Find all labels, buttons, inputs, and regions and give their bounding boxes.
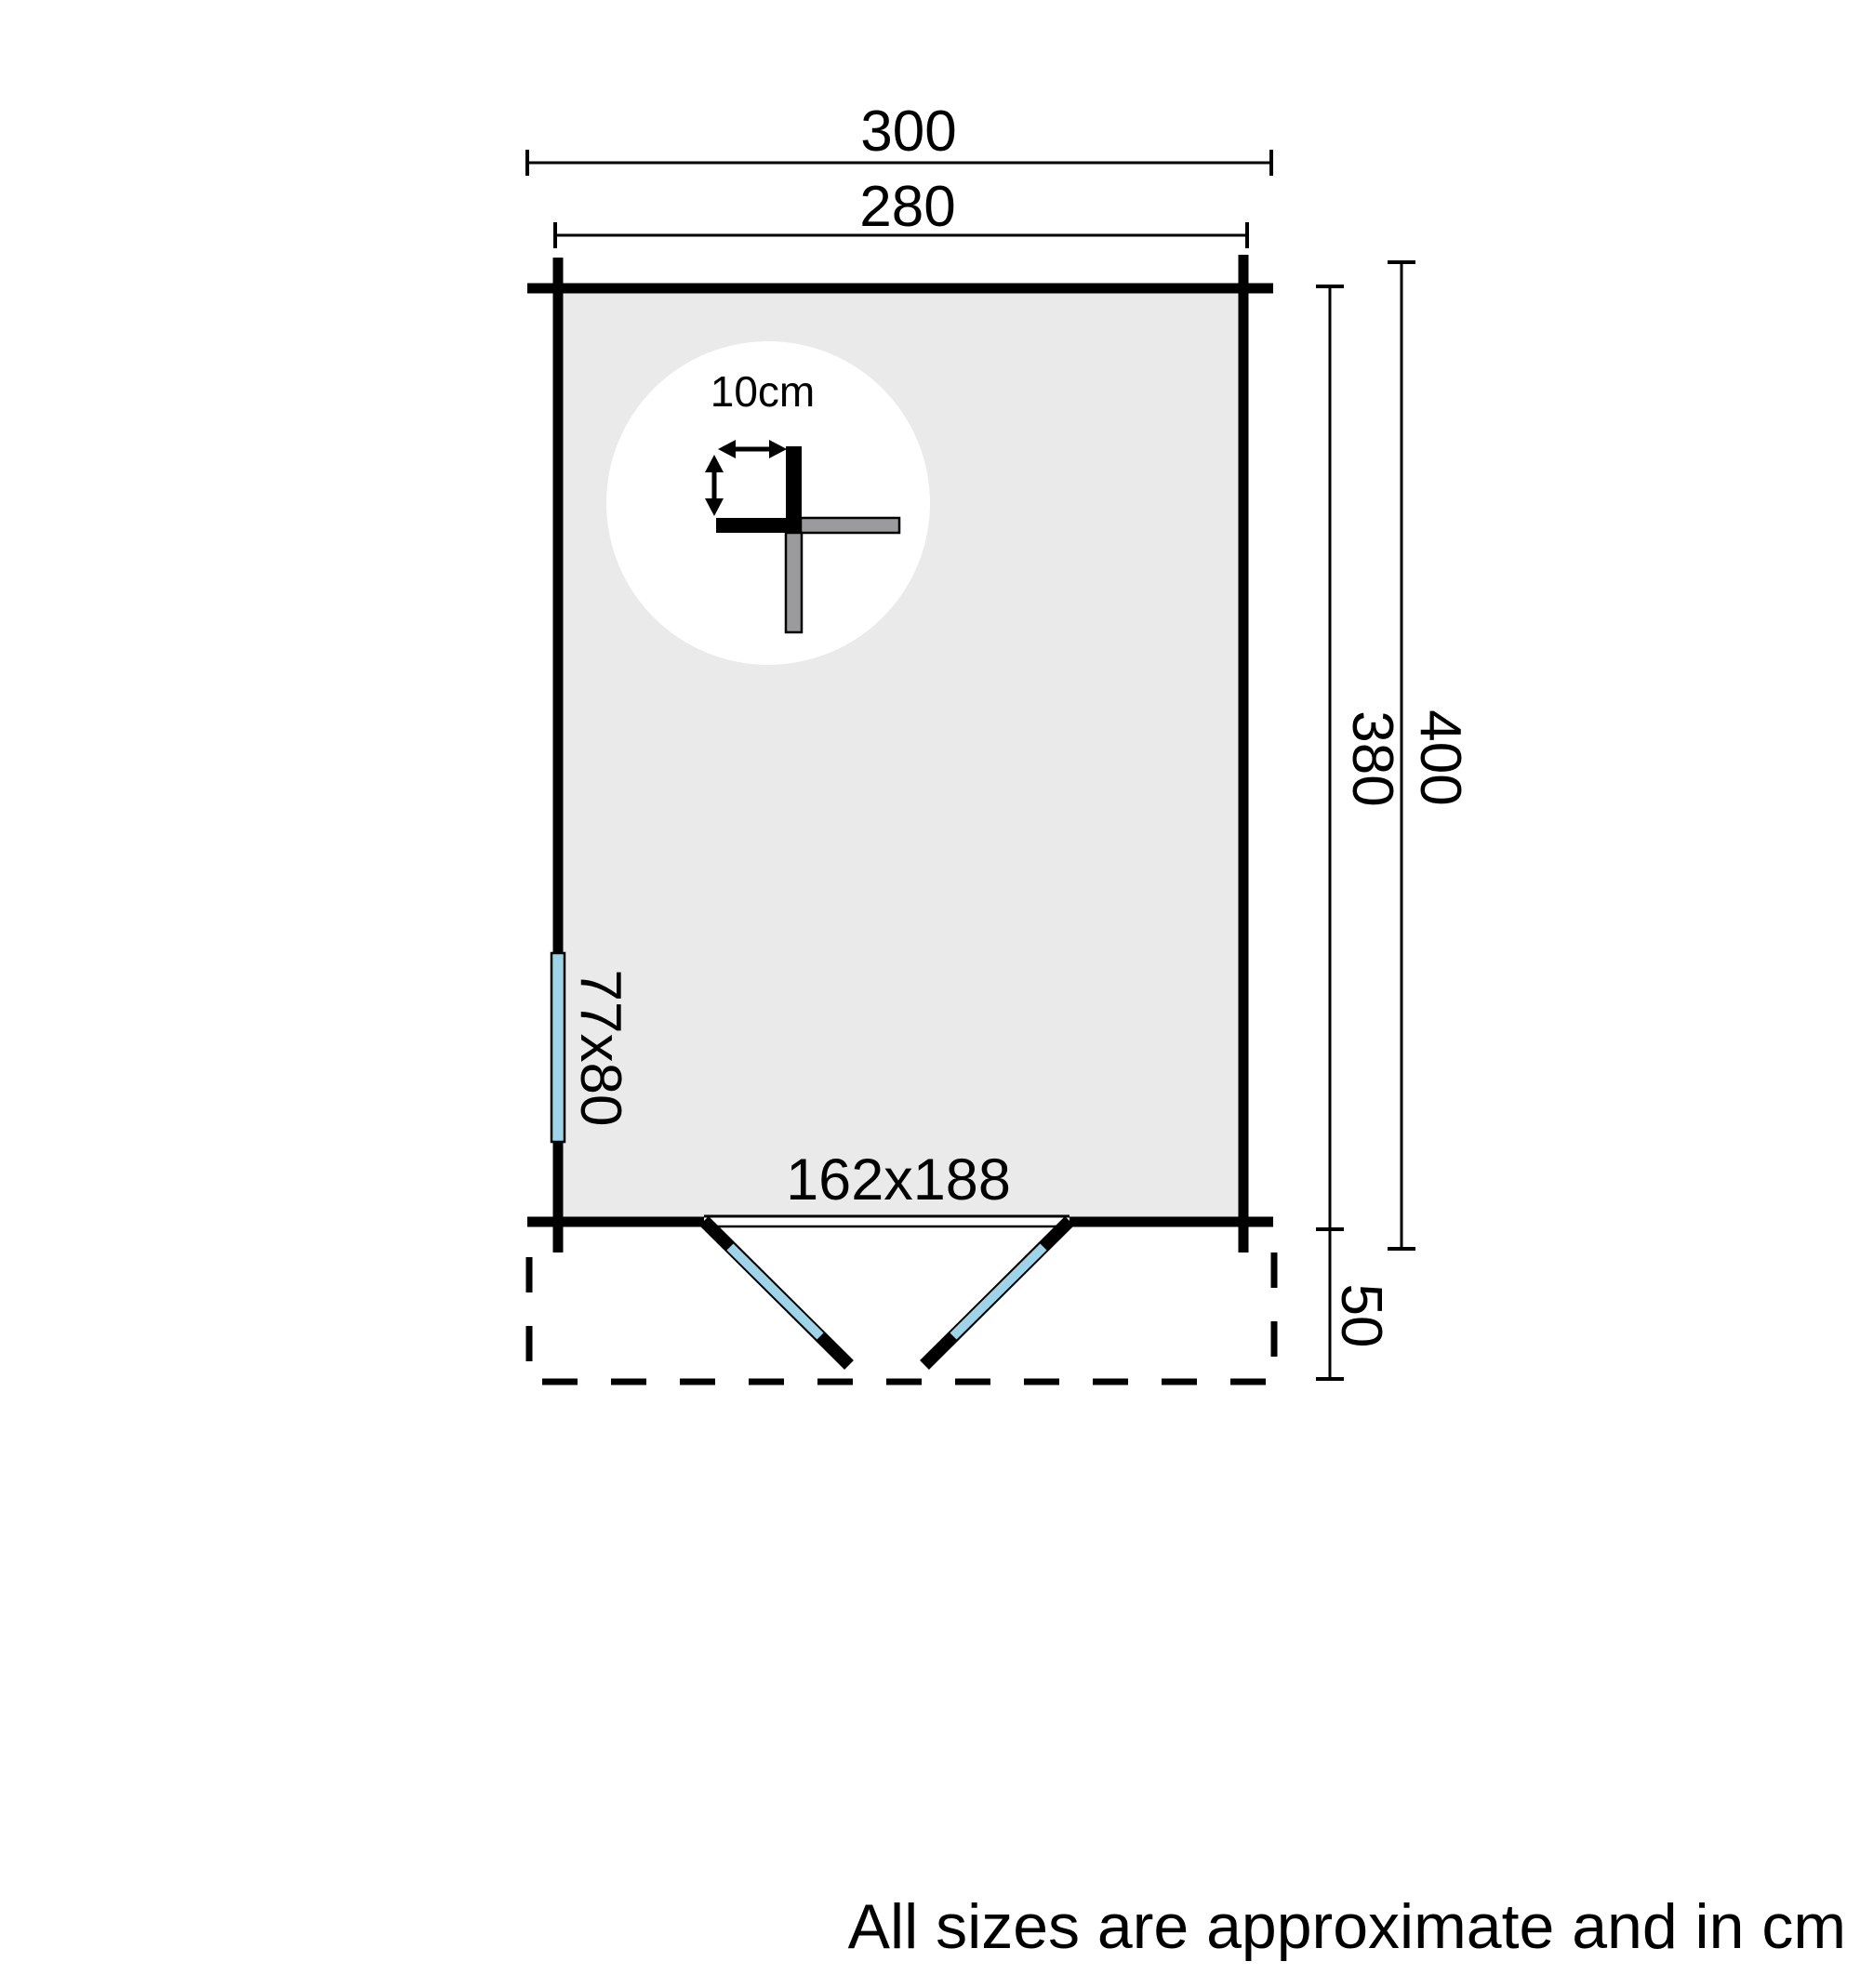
log-detail-bubble: 10cm <box>606 341 930 665</box>
door-threshold <box>704 1217 1069 1226</box>
detail-log-black-horizontal <box>716 518 801 533</box>
detail-log-gray-horizontal <box>801 518 899 533</box>
label-outer-depth: 400 <box>1408 709 1472 805</box>
door-left-glazing <box>730 1247 820 1336</box>
terrace-dashed-outline <box>529 1230 1274 1382</box>
label-inner-width: 280 <box>859 175 955 239</box>
label-log-thickness: 10cm <box>711 367 815 416</box>
floorplan-diagram: 300 280 380 400 50 77x80 162x188 10cm Al… <box>0 0 1860 1988</box>
double-doors <box>704 1221 1069 1365</box>
door-right-glazing <box>953 1247 1043 1336</box>
label-window-size: 77x80 <box>568 970 632 1127</box>
label-door-size: 162x188 <box>786 1147 1011 1213</box>
detail-log-gray-vertical <box>786 533 802 632</box>
note-text: All sizes are approximate and in cm <box>848 1891 1846 1962</box>
label-inner-depth: 380 <box>1340 710 1404 806</box>
label-terrace-depth: 50 <box>1329 1284 1393 1348</box>
window-glazing <box>551 953 565 1142</box>
label-outer-width: 300 <box>860 99 956 164</box>
